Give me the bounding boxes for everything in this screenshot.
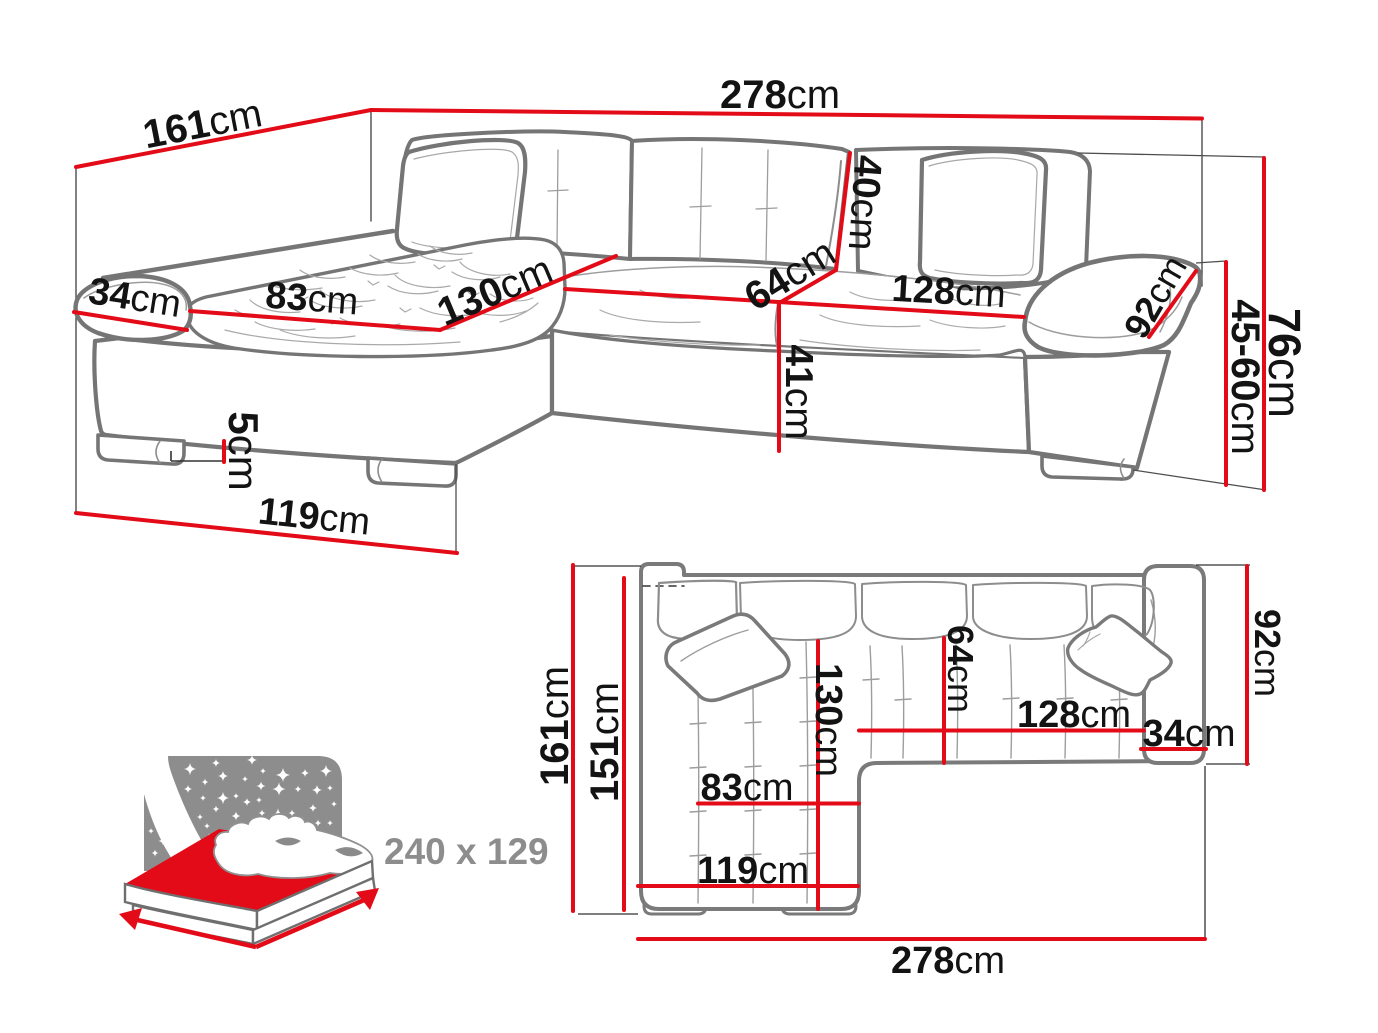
svg-text:76cm: 76cm bbox=[1259, 308, 1310, 418]
svg-text:161cm: 161cm bbox=[139, 91, 265, 157]
svg-text:83cm: 83cm bbox=[264, 275, 360, 324]
svg-text:41cm: 41cm bbox=[777, 344, 820, 439]
svg-text:240 x 129: 240 x 129 bbox=[384, 831, 549, 872]
svg-text:128cm: 128cm bbox=[891, 268, 1007, 316]
svg-text:128cm: 128cm bbox=[1017, 694, 1131, 736]
svg-text:34cm: 34cm bbox=[1143, 713, 1236, 755]
svg-text:151cm: 151cm bbox=[583, 682, 627, 802]
svg-text:278cm: 278cm bbox=[891, 940, 1005, 982]
svg-text:83cm: 83cm bbox=[701, 767, 794, 809]
svg-text:161cm: 161cm bbox=[533, 666, 577, 786]
svg-text:40cm: 40cm bbox=[840, 154, 890, 252]
svg-text:278cm: 278cm bbox=[720, 73, 840, 117]
svg-text:119cm: 119cm bbox=[697, 850, 809, 892]
svg-text:130cm: 130cm bbox=[807, 663, 849, 777]
svg-text:92cm: 92cm bbox=[1247, 609, 1288, 697]
svg-text:64cm: 64cm bbox=[940, 625, 981, 713]
svg-text:5cm: 5cm bbox=[220, 411, 267, 490]
